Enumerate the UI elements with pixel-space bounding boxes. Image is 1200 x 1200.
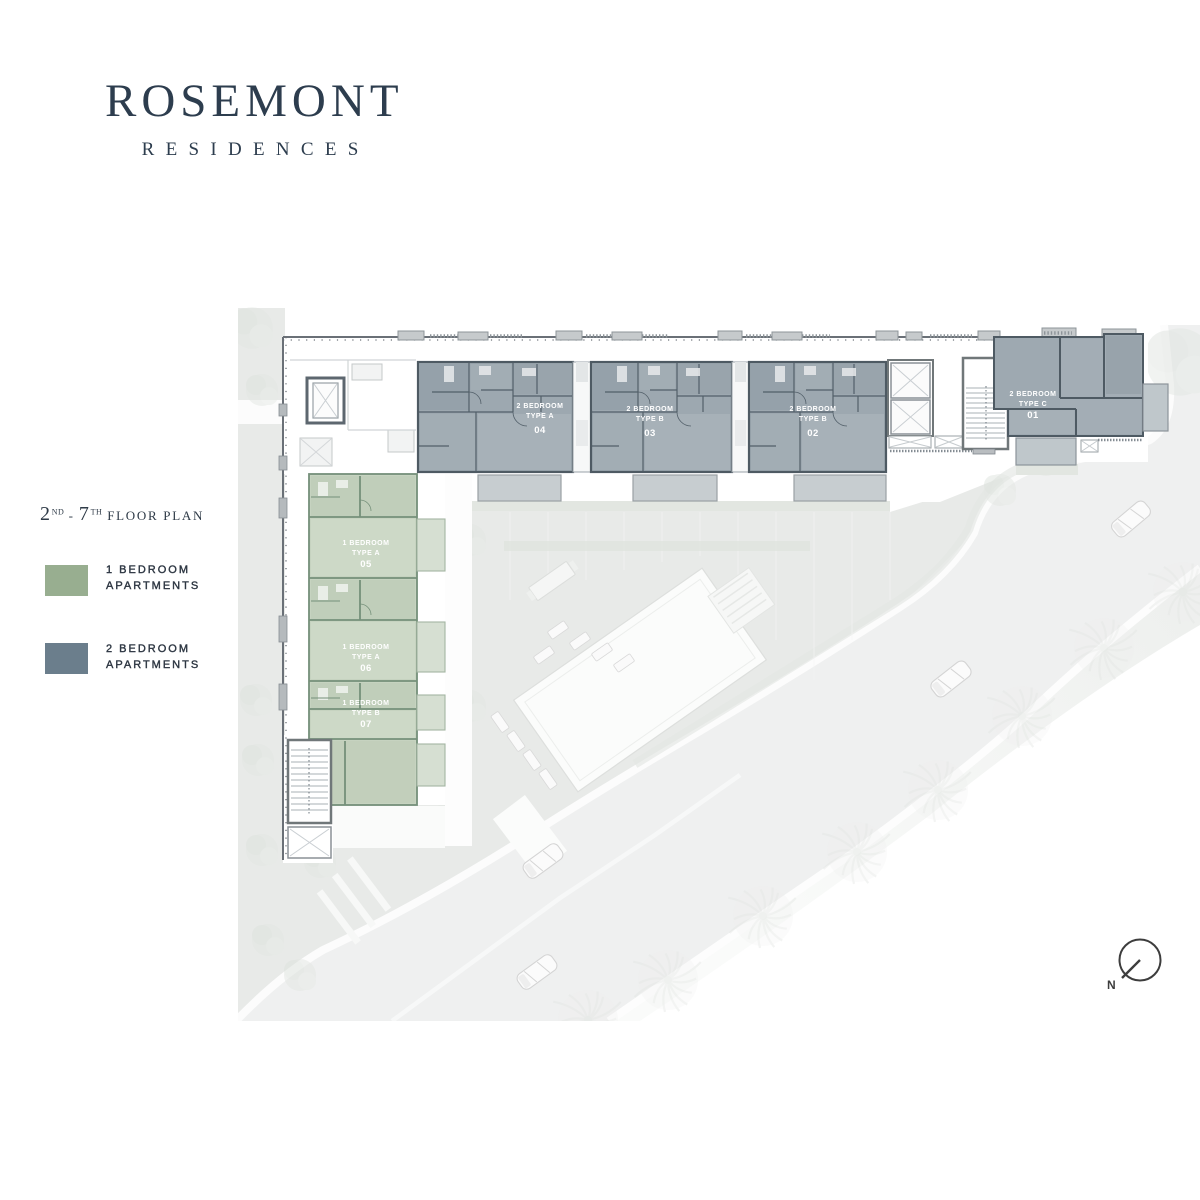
svg-text:N: N (1107, 978, 1116, 992)
svg-text:04: 04 (534, 425, 546, 436)
svg-text:TYPE A: TYPE A (352, 550, 380, 557)
svg-text:TYPE B: TYPE B (799, 416, 827, 423)
svg-text:05: 05 (360, 559, 372, 570)
svg-text:1 BEDROOM: 1 BEDROOM (343, 540, 390, 547)
svg-text:2 BEDROOM: 2 BEDROOM (517, 403, 564, 410)
svg-text:TYPE A: TYPE A (352, 654, 380, 661)
svg-text:TYPE B: TYPE B (636, 416, 664, 423)
svg-text:TYPE C: TYPE C (1019, 401, 1047, 408)
svg-text:03: 03 (644, 428, 656, 439)
svg-text:1 BEDROOM: 1 BEDROOM (343, 700, 390, 707)
svg-text:02: 02 (807, 428, 819, 439)
svg-text:2 BEDROOM: 2 BEDROOM (627, 406, 674, 413)
svg-text:01: 01 (1027, 410, 1039, 421)
svg-text:06: 06 (360, 663, 372, 674)
svg-text:1 BEDROOM: 1 BEDROOM (343, 644, 390, 651)
svg-text:07: 07 (360, 719, 372, 730)
svg-text:2 BEDROOM: 2 BEDROOM (790, 406, 837, 413)
svg-text:TYPE B: TYPE B (352, 710, 380, 717)
svg-text:TYPE A: TYPE A (526, 413, 554, 420)
svg-text:2 BEDROOM: 2 BEDROOM (1010, 391, 1057, 398)
